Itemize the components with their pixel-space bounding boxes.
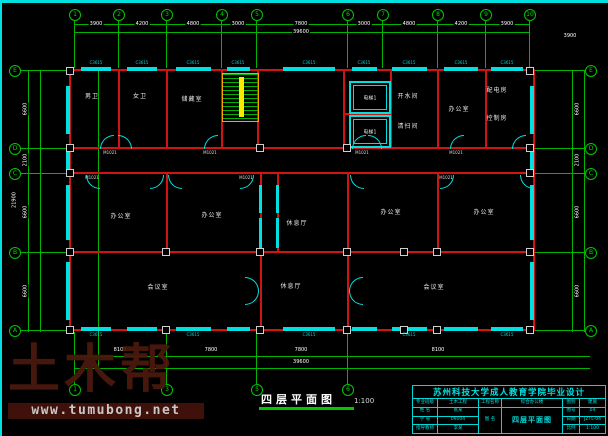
field-value: 建施 [580, 399, 605, 408]
axis-line [382, 20, 383, 68]
room-label: 电梯1 [363, 94, 376, 101]
window-tag: C3615 [501, 333, 514, 337]
axis-bubble: 1 [69, 9, 81, 21]
dim-label: 2100 [576, 154, 581, 167]
window-tag: C3615 [358, 61, 371, 65]
wall-segment [343, 69, 345, 149]
dim-line [98, 70, 99, 370]
room-label: 休息厅 [280, 284, 301, 290]
axis-line [347, 20, 348, 68]
window-tag: C3615 [187, 333, 200, 337]
elevator-1-box: 电梯1 [349, 81, 391, 114]
window-segment [491, 67, 523, 71]
door-arc [349, 291, 363, 305]
dim-label: 6600 [576, 206, 581, 219]
cad-drawing-canvas: 电梯1 电梯1 1 2 3 4 5 6 7 8 9 10 1 [0, 0, 608, 436]
door-arc [450, 135, 464, 149]
dim-label: 4200 [135, 22, 150, 27]
field-value: 张某 [438, 408, 478, 417]
door-arc [150, 175, 164, 189]
axis-line [529, 20, 530, 68]
door-arc [512, 135, 526, 149]
door-arc [118, 135, 132, 149]
dim-label: 6600 [24, 285, 29, 298]
window-tag: C3615 [232, 61, 245, 65]
dim-label: 3900 [500, 22, 515, 27]
dim-label: 7800 [294, 22, 309, 27]
field-value: 04 [580, 408, 605, 417]
wall-segment [166, 172, 168, 253]
column-marker [343, 144, 351, 152]
field-label: 工程名称 [479, 399, 501, 408]
axis-line [533, 330, 585, 331]
axis-bubble: C [585, 168, 597, 180]
column-marker [256, 326, 264, 334]
field-value: 李某 [438, 425, 478, 433]
door-arc [168, 175, 182, 189]
wall-segment [437, 69, 439, 149]
sheet-name: 四层平面图 [502, 408, 562, 433]
axis-bubble: 3 [161, 9, 173, 21]
field-value: 土木工程 [438, 399, 478, 408]
window-segment [259, 218, 262, 248]
field-value: 1:100 [580, 425, 605, 433]
room-label: 电梯1 [363, 128, 376, 135]
field-label: 图号 [563, 408, 579, 417]
door-tag: M1021 [103, 151, 117, 155]
axis-bubble: 8 [432, 9, 444, 21]
axis-line [485, 20, 486, 68]
window-tag: C3615 [90, 61, 103, 65]
axis-line [18, 148, 70, 149]
wall-segment [347, 172, 349, 253]
room-label: 办公室 [473, 210, 494, 216]
room-label: 办公室 [110, 214, 131, 220]
window-segment [276, 218, 279, 248]
room-label: 配电房 [486, 88, 507, 94]
window-segment [127, 327, 157, 331]
axis-line [533, 173, 585, 174]
window-segment [283, 327, 335, 331]
wall-segment [69, 147, 535, 149]
field-label: 指导教师 [413, 425, 437, 433]
column-marker [256, 248, 264, 256]
window-tag: C3615 [403, 333, 416, 337]
axis-line [533, 252, 585, 253]
wall-segment [166, 69, 168, 149]
window-segment [81, 67, 111, 71]
field-label: 图别 [563, 399, 579, 408]
column-marker [526, 326, 534, 334]
axis-bubble: C [9, 168, 21, 180]
door-tag: M1021 [85, 176, 99, 180]
door-arc [245, 277, 259, 291]
column-marker [526, 67, 534, 75]
room-label: 休息厅 [286, 221, 307, 227]
dim-label: 4200 [454, 22, 469, 27]
plan-title-underline [259, 407, 354, 410]
column-marker [400, 248, 408, 256]
project-name: 综合办公楼 [502, 399, 562, 408]
window-segment [530, 185, 534, 240]
dim-line [572, 70, 573, 332]
dim-label: 4800 [402, 22, 417, 27]
dim-label: 3000 [231, 22, 246, 27]
dim-label: 6600 [576, 103, 581, 116]
stair-handrail [239, 77, 244, 117]
column-marker [526, 248, 534, 256]
room-label: 控制房 [486, 116, 507, 122]
wall-segment [485, 69, 487, 149]
column-marker [162, 326, 170, 334]
dim-label: 7800 [204, 348, 219, 353]
column-marker [66, 248, 74, 256]
field-label: 姓 名 [413, 408, 437, 417]
door-tag: M1021 [355, 151, 369, 155]
column-marker [256, 144, 264, 152]
room-label: 男卫 [85, 94, 99, 100]
dim-label: 2100 [24, 154, 29, 167]
window-segment [176, 67, 211, 71]
field-label: 学 号 [413, 417, 437, 426]
dim-line [40, 70, 41, 332]
window-segment [66, 86, 70, 134]
column-marker [433, 248, 441, 256]
dim-label: 21900 [13, 192, 18, 208]
dim-label: 3900 [563, 34, 578, 39]
dim-label: 3900 [89, 22, 104, 27]
room-label: 会议室 [423, 285, 444, 291]
window-segment [491, 327, 523, 331]
column-marker [66, 326, 74, 334]
window-segment [276, 185, 279, 213]
axis-line [256, 332, 257, 384]
wall-segment [69, 172, 535, 174]
door-arc [100, 135, 114, 149]
window-tag: C3615 [187, 61, 200, 65]
axis-line [166, 20, 167, 68]
window-segment [392, 327, 427, 331]
wall-segment [437, 172, 439, 253]
column-marker [343, 326, 351, 334]
frame-top [0, 0, 608, 3]
field-label: 专业班级 [413, 399, 437, 408]
dim-label: 6600 [24, 103, 29, 116]
door-arc [204, 135, 218, 149]
room-label: 清扫间 [397, 124, 418, 130]
column-marker [66, 67, 74, 75]
door-tag: M1021 [439, 176, 453, 180]
window-segment [176, 327, 211, 331]
window-tag: C3615 [303, 61, 316, 65]
door-tag: M1021 [449, 151, 463, 155]
field-value: JZTL-04 [580, 417, 605, 426]
window-segment [127, 67, 157, 71]
column-marker [66, 144, 74, 152]
window-segment [227, 67, 250, 71]
axis-bubble: 4 [216, 9, 228, 21]
window-segment [530, 86, 534, 134]
field-value: 09104 [438, 417, 478, 426]
axis-line [533, 70, 585, 71]
window-segment [352, 67, 377, 71]
staircase [222, 73, 259, 122]
axis-bubble: E [9, 65, 21, 77]
window-segment [66, 150, 70, 171]
window-tag: C3615 [136, 61, 149, 65]
window-segment [259, 185, 262, 213]
window-segment [81, 327, 111, 331]
window-segment [392, 67, 427, 71]
window-segment [530, 150, 534, 171]
dim-label: 7800 [294, 348, 309, 353]
door-tag: M1021 [203, 151, 217, 155]
wall-segment [69, 251, 535, 253]
window-tag: C3615 [501, 61, 514, 65]
dim-line [584, 70, 585, 332]
column-marker [526, 144, 534, 152]
axis-bubble: 7 [377, 9, 389, 21]
window-segment [66, 262, 70, 320]
window-segment [444, 67, 478, 71]
dim-label: 39600 [292, 360, 310, 365]
axis-bubble: E [585, 65, 597, 77]
axis-bubble: 6 [342, 9, 354, 21]
axis-line [347, 332, 348, 384]
axis-line [18, 70, 70, 71]
axis-line [118, 20, 119, 68]
title-block: 苏州科技大学成人教育学院毕业设计 专业班级 姓 名 学 号 指导教师 土木工程 … [412, 385, 606, 434]
axis-bubble: B [9, 247, 21, 259]
window-tag: C3615 [455, 61, 468, 65]
watermark-logo: 土木帮 [8, 344, 176, 396]
room-label: 储藏室 [181, 97, 202, 103]
room-label: 办公室 [448, 107, 469, 113]
watermark-url: www.tumubong.net [8, 403, 204, 419]
axis-bubble: 2 [113, 9, 125, 21]
room-label: 开水间 [397, 94, 418, 100]
room-label: 办公室 [380, 210, 401, 216]
room-label: 会议室 [147, 285, 168, 291]
column-marker [162, 248, 170, 256]
axis-line [18, 252, 70, 253]
dim-label: 4800 [186, 22, 201, 27]
axis-bubble: 9 [480, 9, 492, 21]
window-segment [66, 185, 70, 240]
axis-line [18, 330, 70, 331]
field-label: 日期 [563, 417, 579, 426]
window-segment [283, 67, 335, 71]
axis-bubble: 10 [524, 9, 536, 21]
dim-label: 6600 [576, 285, 581, 298]
axis-line [256, 20, 257, 68]
axis-line [437, 20, 438, 68]
window-segment [227, 327, 250, 331]
dim-label: 39600 [292, 30, 310, 35]
axis-bubble: 5 [251, 9, 263, 21]
axis-bubble: D [9, 143, 21, 155]
door-arc [349, 277, 363, 291]
column-marker [343, 248, 351, 256]
axis-line [221, 20, 222, 68]
window-segment [444, 327, 478, 331]
axis-line [74, 20, 75, 68]
axis-line [533, 148, 585, 149]
window-tag: C3615 [90, 333, 103, 337]
door-arc [520, 175, 534, 189]
dim-label: 3000 [357, 22, 372, 27]
axis-line [18, 173, 70, 174]
title-block-banner: 苏州科技大学成人教育学院毕业设计 [413, 386, 605, 399]
frame-left [0, 0, 2, 436]
plan-scale: 1:100 [354, 397, 374, 405]
wall-segment [260, 251, 262, 331]
window-segment [352, 327, 377, 331]
room-label: 女卫 [133, 94, 147, 100]
door-arc [350, 175, 364, 189]
window-tag: C3615 [403, 61, 416, 65]
column-marker [433, 326, 441, 334]
field-label: 比例 [563, 425, 579, 433]
field-label: 图 名 [479, 408, 501, 433]
dim-label: 6600 [24, 206, 29, 219]
axis-bubble: 6 [342, 384, 354, 396]
axis-bubble: A [9, 325, 21, 337]
column-marker [66, 169, 74, 177]
axis-bubble: A [585, 325, 597, 337]
column-marker [526, 169, 534, 177]
door-arc [245, 291, 259, 305]
room-label: 办公室 [201, 213, 222, 219]
door-tag: M1021 [239, 176, 253, 180]
window-tag: C3615 [303, 333, 316, 337]
axis-bubble: B [585, 247, 597, 259]
plan-title: 四层平面图 [261, 391, 336, 407]
dim-label: 8100 [431, 348, 446, 353]
window-segment [530, 262, 534, 320]
axis-bubble: D [585, 143, 597, 155]
